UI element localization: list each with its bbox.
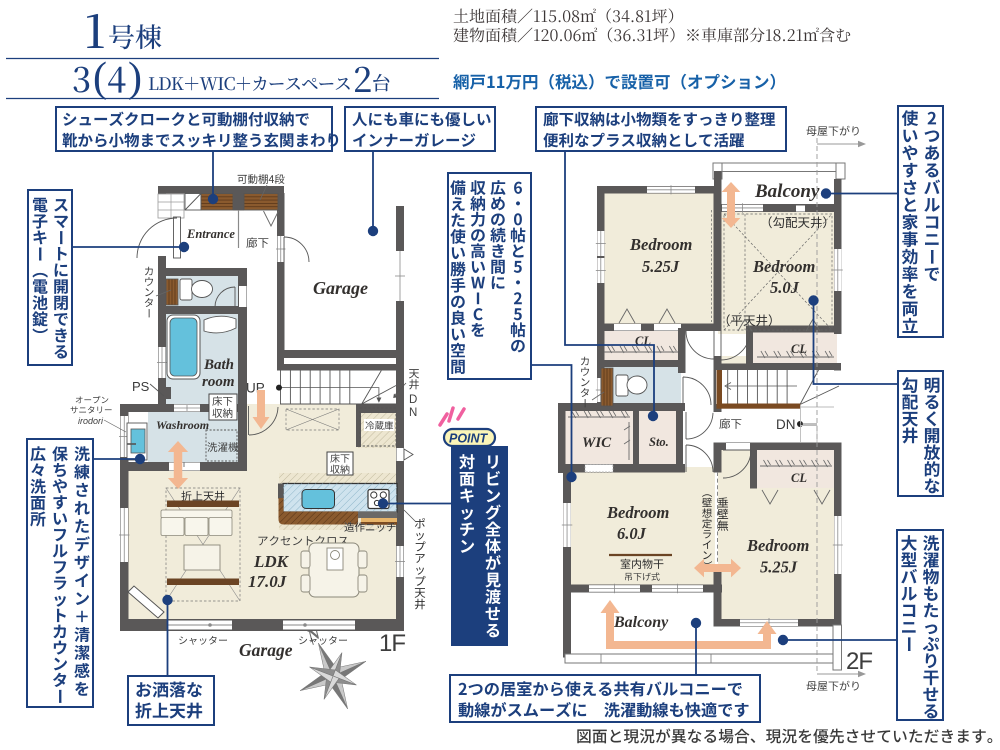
svg-text:Entrance: Entrance [186,227,235,241]
svg-text:Bedroom: Bedroom [629,235,693,254]
svg-text:CL: CL [791,471,807,485]
svg-text:Bedroom: Bedroom [746,536,810,555]
svg-text:5.25J: 5.25J [642,257,680,276]
svg-text:): ) [128,55,142,101]
svg-text:Balcony: Balcony [754,181,820,202]
svg-text:Garage: Garage [239,640,293,660]
svg-text:Bedroom: Bedroom [752,257,816,276]
svg-text:PS: PS [132,379,150,394]
svg-text:Bedroom: Bedroom [606,503,670,522]
svg-text:Garage: Garage [313,278,368,298]
svg-text:Sto.: Sto. [649,435,669,449]
svg-text:D: D [409,394,417,406]
svg-text:Washroom: Washroom [156,418,209,432]
svg-text:POINT: POINT [449,432,489,446]
svg-text:WIC: WIC [582,435,612,451]
svg-text:DN: DN [776,417,796,432]
svg-text:2F: 2F [846,648,872,675]
svg-text:Bath: Bath [203,357,234,373]
svg-text:5.0J: 5.0J [770,278,800,297]
svg-text:Balcony: Balcony [613,614,669,631]
svg-text:irodori: irodori [78,416,104,426]
svg-text:1F: 1F [379,630,405,657]
svg-text:room: room [202,374,235,390]
svg-text:17.0J: 17.0J [248,572,287,591]
svg-text:5.25J: 5.25J [760,558,798,577]
svg-text:(: ( [93,55,107,101]
svg-text:N: N [409,407,417,419]
svg-text:6.0J: 6.0J [617,524,647,543]
svg-text:LDK: LDK [253,552,290,571]
